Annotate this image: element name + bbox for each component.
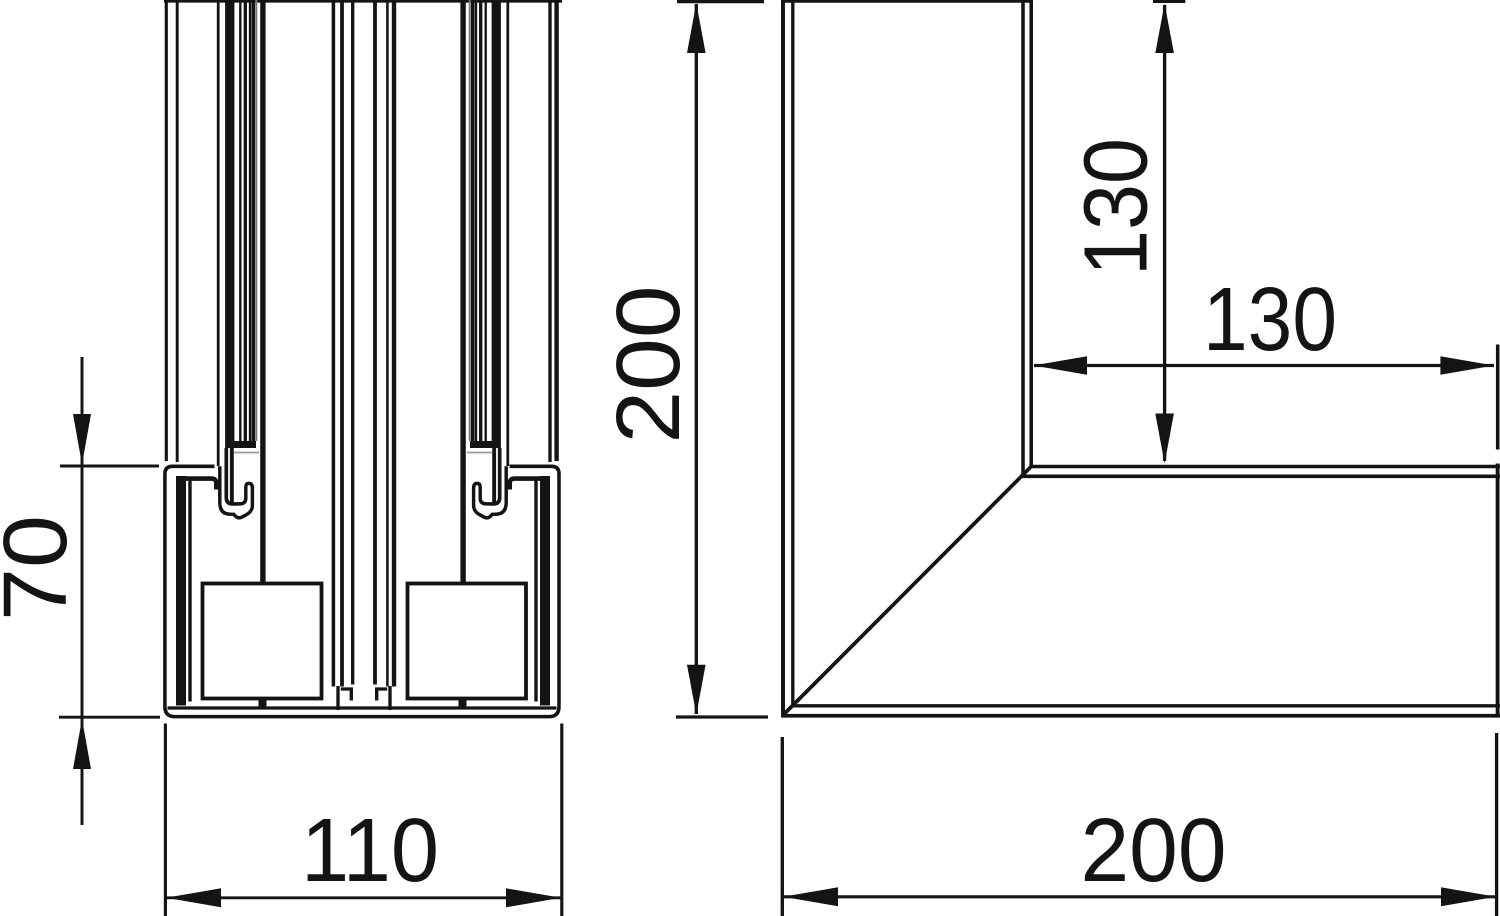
svg-text:200: 200: [599, 286, 699, 444]
svg-text:130: 130: [1067, 138, 1167, 276]
svg-text:70: 70: [0, 515, 86, 621]
svg-text:110: 110: [301, 801, 439, 901]
svg-text:200: 200: [1081, 801, 1227, 901]
svg-text:130: 130: [1203, 270, 1337, 370]
